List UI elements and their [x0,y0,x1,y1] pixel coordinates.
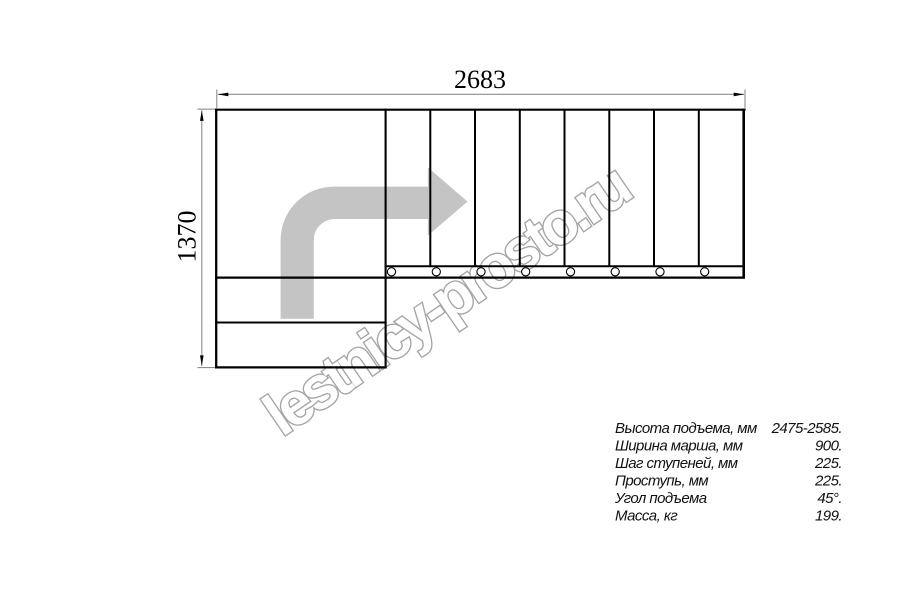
svg-text:Угол подъема: Угол подъема [614,490,707,507]
svg-text:Ширина марша, мм: Ширина марша, мм [615,438,743,455]
svg-text:Шаг ступеней, мм: Шаг ступеней, мм [615,455,738,472]
svg-text:225.: 225. [814,455,842,472]
svg-text:225.: 225. [814,473,842,490]
svg-text:Проступь, мм: Проступь, мм [615,473,708,490]
svg-text:Масса, кг: Масса, кг [615,508,678,525]
svg-text:Высота подъема, мм: Высота подъема, мм [615,420,757,437]
svg-text:2683: 2683 [454,65,506,94]
svg-text:900.: 900. [815,438,842,455]
svg-text:1370: 1370 [173,211,202,263]
svg-text:2475-2585.: 2475-2585. [771,420,842,437]
svg-text:199.: 199. [815,508,842,525]
svg-text:45°.: 45°. [817,490,842,507]
